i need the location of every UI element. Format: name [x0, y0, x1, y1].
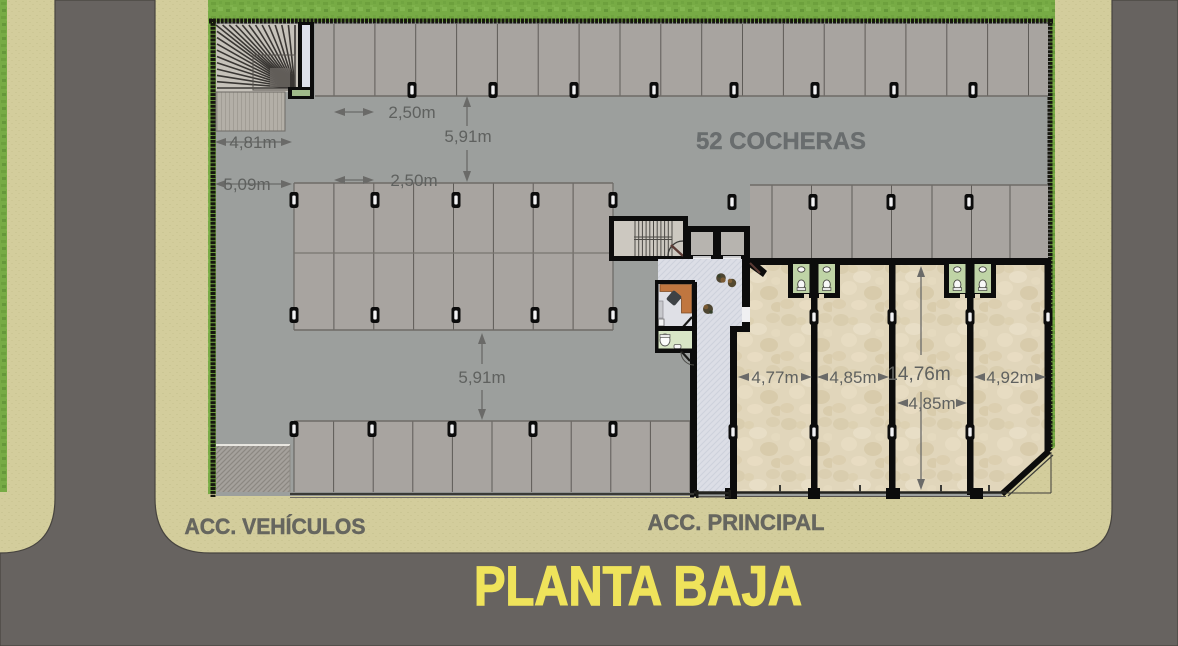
svg-text:5,91m: 5,91m [458, 368, 505, 387]
svg-text:4,85m: 4,85m [829, 368, 876, 387]
svg-text:4,85m: 4,85m [908, 394, 955, 413]
svg-text:ACC. PRINCIPAL: ACC. PRINCIPAL [648, 510, 825, 535]
svg-text:14,76m: 14,76m [887, 364, 950, 385]
svg-text:4,92m: 4,92m [986, 368, 1033, 387]
svg-text:2,50m: 2,50m [388, 103, 435, 122]
svg-text:ACC. VEHÍCULOS: ACC. VEHÍCULOS [185, 514, 366, 539]
svg-text:4,81m: 4,81m [229, 133, 276, 152]
svg-text:5,09m: 5,09m [223, 175, 270, 194]
svg-text:5,91m: 5,91m [444, 127, 491, 146]
svg-text:2,50m: 2,50m [390, 171, 437, 190]
svg-text:PLANTA BAJA: PLANTA BAJA [474, 554, 802, 617]
svg-text:4,77m: 4,77m [751, 368, 798, 387]
svg-text:52 COCHERAS: 52 COCHERAS [696, 128, 866, 155]
